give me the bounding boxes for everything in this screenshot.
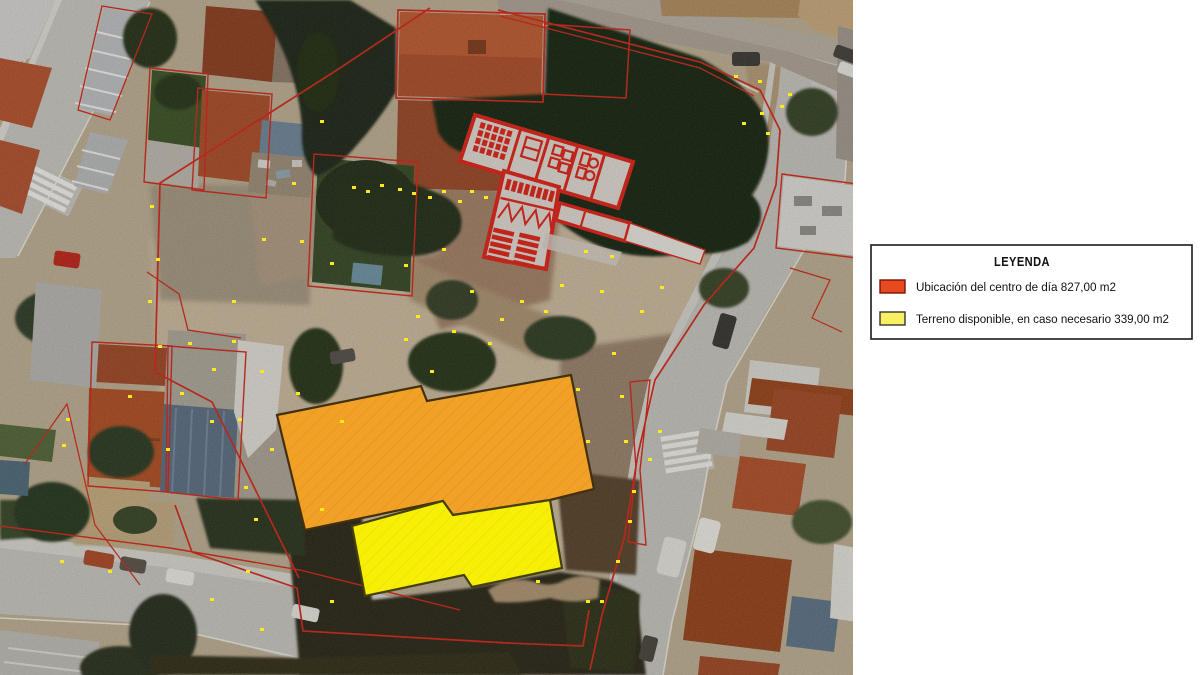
svg-text:Ubicación del centro de día 82: Ubicación del centro de día 827,00 m2 (916, 280, 1116, 294)
svg-text:Terreno disponible, en caso ne: Terreno disponible, en caso necesario 33… (916, 312, 1169, 326)
svg-text:LEYENDA: LEYENDA (994, 254, 1050, 269)
